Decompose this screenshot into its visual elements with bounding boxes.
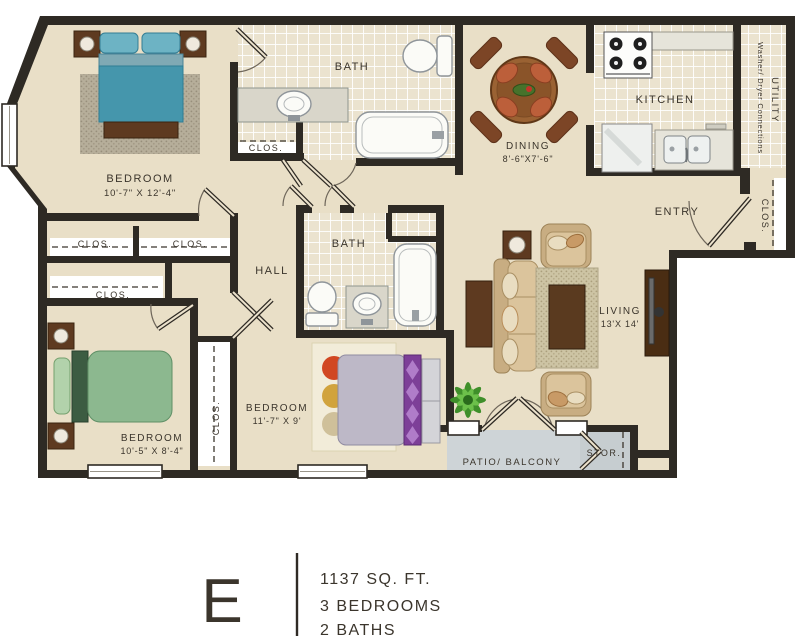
- armchair-top: [541, 224, 591, 268]
- tub-faucet: [432, 131, 444, 139]
- legend-baths: 2 BATHS: [320, 622, 396, 639]
- kitchen-sink: [664, 136, 686, 163]
- storage-label: STOR.: [587, 448, 622, 458]
- faucet: [288, 115, 300, 121]
- toilet: [403, 40, 437, 72]
- living-dims: 13'X 14': [601, 319, 639, 329]
- bedroom2-label: BEDROOM: [121, 433, 183, 444]
- plan-letter: E: [201, 567, 242, 636]
- sink: [353, 293, 381, 315]
- kitchen-label: KITCHEN: [636, 94, 695, 106]
- bedroom3-furniture: [312, 343, 440, 451]
- tub-faucet: [412, 310, 419, 321]
- closet-row1b-label: CLOS.: [173, 239, 208, 249]
- lamp: [54, 329, 68, 343]
- closet-row1a-label: CLOS.: [78, 239, 113, 249]
- bath2-label: BATH: [332, 238, 367, 250]
- bath1-closet-label: CLOS.: [249, 143, 284, 153]
- patio-label: PATIO/ BALCONY: [463, 457, 562, 468]
- closet-row2-label: CLOS.: [96, 290, 131, 300]
- entry-closet-label: CLOS.: [760, 199, 770, 234]
- armchair-bottom: [541, 372, 591, 416]
- utility-sub-label: Washer/ Dryer Connections: [756, 42, 765, 154]
- closet-entry: [774, 178, 786, 250]
- floorplan-drawing: BEDROOM 10'-7" X 12'-4" BATH CLOS. DININ…: [0, 0, 800, 641]
- stove: [604, 32, 652, 78]
- bed-green: [54, 351, 172, 422]
- hall-label: HALL: [255, 265, 289, 277]
- bedroom3-label: BEDROOM: [246, 403, 308, 414]
- counter: [652, 32, 733, 50]
- bedroom3-closet-label: CLOS.: [211, 401, 221, 436]
- bedroom2-dims: 10'-5" X 8'-4": [120, 446, 183, 456]
- toilet-tank: [306, 313, 338, 326]
- living-label: LIVING: [599, 306, 641, 317]
- utility-label: UTILITY: [769, 77, 780, 123]
- bath1-label: BATH: [335, 61, 370, 73]
- bedroom3-dims: 11'-7" X 9': [253, 416, 302, 426]
- legend-area: 1137 SQ. FT.: [320, 571, 431, 588]
- lamp: [54, 429, 68, 443]
- dining-label: DINING: [506, 141, 550, 152]
- bedroom1-label: BEDROOM: [106, 173, 173, 185]
- patio-slider-left: [448, 421, 479, 435]
- sofa: [494, 259, 538, 373]
- faucet: [361, 319, 373, 325]
- coffee-table: [549, 285, 585, 349]
- kitchen-sink: [688, 136, 710, 163]
- sofa-table: [466, 281, 492, 347]
- entry-label: ENTRY: [655, 206, 700, 218]
- bedroom1-dims: 10'-7" X 12'-4": [104, 188, 176, 199]
- dining-dims: 8'-6"X7'-6": [503, 154, 554, 164]
- tv-console: [645, 270, 669, 356]
- bed-purple: [338, 355, 440, 445]
- lamp: [80, 37, 94, 51]
- floorplan-page: BEDROOM 10'-7" X 12'-4" BATH CLOS. DININ…: [0, 0, 800, 641]
- lamp: [186, 37, 200, 51]
- kitchen-faucet: [686, 148, 687, 162]
- sink: [277, 91, 311, 117]
- toilet: [308, 282, 336, 312]
- plant: [450, 382, 486, 418]
- toilet-tank: [437, 36, 452, 76]
- legend-bedrooms: 3 BEDROOMS: [320, 598, 442, 615]
- legend: E 1137 SQ. FT. 3 BEDROOMS 2 BATHS: [201, 553, 441, 639]
- lamp: [509, 237, 525, 253]
